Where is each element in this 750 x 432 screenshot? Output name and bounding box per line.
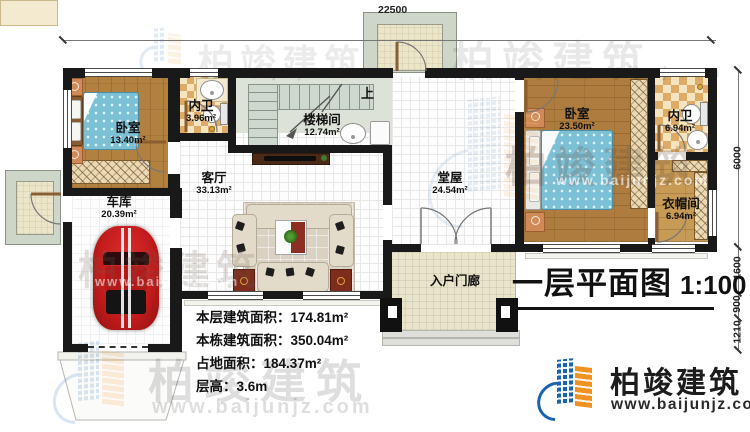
car [93, 226, 159, 330]
info-block: 本层建筑面积：174.81m² 本栋建筑面积：350.04m² 占地面积：184… [196, 306, 348, 398]
wall [708, 236, 717, 252]
porch-step [382, 338, 520, 346]
plan-title-text: 一层平面图 [512, 266, 672, 301]
washbasin [340, 123, 366, 144]
pillar-notch [388, 306, 397, 318]
sink [200, 80, 224, 100]
floor-drain [697, 84, 703, 90]
brand-website: www.baijunjz.com [611, 396, 750, 414]
garage-door-dashed [88, 346, 148, 348]
plan-title: 一层平面图1:100 [512, 258, 714, 310]
wall [168, 133, 236, 141]
label-bath1: 内卫3.96m² [186, 100, 216, 124]
stair-nook-counter [0, 0, 58, 26]
window [208, 291, 263, 300]
info-line-height: 层高：3.6m [196, 375, 348, 398]
dim-right-1210: 1210 [732, 320, 744, 343]
wardrobe-bedroom2 [630, 79, 648, 209]
info-line-footprint: 占地面积：184.37m² [196, 352, 348, 375]
label-garage: 车库20.39m² [101, 196, 136, 220]
label-porch: 入户门廊 [430, 275, 480, 289]
wall [686, 152, 708, 160]
label-bedroom1: 卧室13.40m² [110, 122, 145, 146]
wall [180, 291, 208, 299]
wall [63, 344, 88, 352]
wall [425, 68, 660, 78]
pillar-notch [501, 306, 510, 318]
window [63, 90, 72, 148]
dim-right-6000: 6000 [732, 146, 744, 169]
window [660, 68, 705, 77]
wall [648, 152, 658, 160]
window [85, 68, 152, 77]
sofa-left [232, 214, 257, 267]
label-bath2: 内卫6.94m² [665, 110, 695, 134]
wall [515, 68, 524, 80]
info-line-total-area: 本栋建筑面积：350.04m² [196, 329, 348, 352]
wall [228, 77, 236, 145]
washing-machine [370, 121, 390, 145]
window [303, 291, 360, 300]
wall [708, 68, 717, 190]
info-line-floor-area: 本层建筑面积：174.81m² [196, 306, 348, 329]
window [708, 190, 717, 236]
wall [148, 344, 182, 352]
watermark-logo-icon [432, 92, 552, 232]
label-bedroom2: 卧室23.50m² [559, 108, 594, 132]
wall [263, 291, 303, 299]
wall [170, 248, 182, 352]
window [543, 244, 620, 253]
wall [63, 68, 72, 90]
table-plant [284, 230, 297, 243]
window [190, 68, 218, 77]
tv [264, 156, 316, 161]
wall [63, 222, 72, 352]
plan-scale: 1:100 [680, 270, 747, 300]
side-table [233, 269, 255, 293]
label-stairwell: 楼梯间12.74m² [303, 114, 341, 138]
wall [383, 145, 392, 205]
stairs-up-label: 上 [361, 83, 374, 102]
wall [170, 196, 182, 218]
floor-drain [209, 126, 215, 132]
sofa-pillow [265, 267, 274, 276]
label-living: 客厅33.13m² [196, 172, 231, 196]
toilet-tank [220, 103, 228, 125]
wall [228, 145, 392, 153]
wall [63, 148, 72, 192]
wall [218, 68, 393, 78]
wall [392, 244, 421, 252]
side-terrace-floor [16, 181, 54, 235]
back-porch-floor [377, 24, 443, 71]
label-hall: 堂屋24.54m² [432, 172, 467, 196]
plant [321, 155, 327, 161]
stair-flight-left [248, 84, 278, 148]
wardrobe-closet-top [672, 160, 708, 172]
wall [648, 77, 655, 208]
side-table [330, 269, 352, 293]
dim-top-value: 22500 [378, 4, 407, 16]
label-closet: 衣帽间6.94m² [662, 198, 700, 222]
toilet-tank [700, 102, 708, 126]
brand-logo-icon [538, 356, 600, 422]
window [652, 244, 695, 253]
floor-plan: 上 [0, 0, 750, 432]
wall [515, 112, 524, 252]
sofa-pillow [285, 267, 294, 276]
dimension-line-top [63, 40, 716, 41]
watermark-url: www.baijunjz.com [152, 396, 373, 419]
